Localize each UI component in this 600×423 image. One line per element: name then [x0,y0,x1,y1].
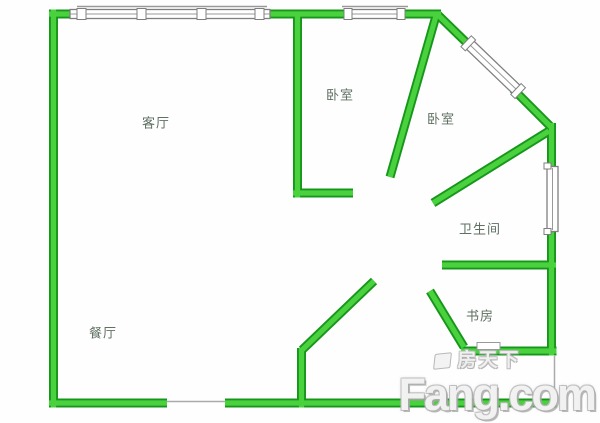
room-label-dining-room: 餐厅 [89,323,117,342]
floor-plan-svg [0,0,600,423]
room-label-study: 书房 [466,306,494,325]
wall-study-west-diag-fill [430,291,464,347]
window-top-middle [342,7,408,20]
wall-bedroom-divider-fill [390,16,436,177]
window-right [544,163,558,235]
wall-hall-diag-fill [302,281,374,350]
window-diagonal [461,36,526,99]
study-wall-notch [477,343,500,350]
window-top-left [70,7,270,20]
room-label-bathroom: 卫生间 [459,219,501,238]
room-label-bedroom-top: 卧室 [326,85,354,104]
wall-bathroom-north-fill [433,131,549,203]
room-label-bedroom-right: 卧室 [427,109,455,128]
room-label-living-room: 客厅 [142,113,170,132]
floor-plan: 客厅 卧室 卧室 卫生间 书房 餐厅 房天下 Fang.com [0,0,600,423]
